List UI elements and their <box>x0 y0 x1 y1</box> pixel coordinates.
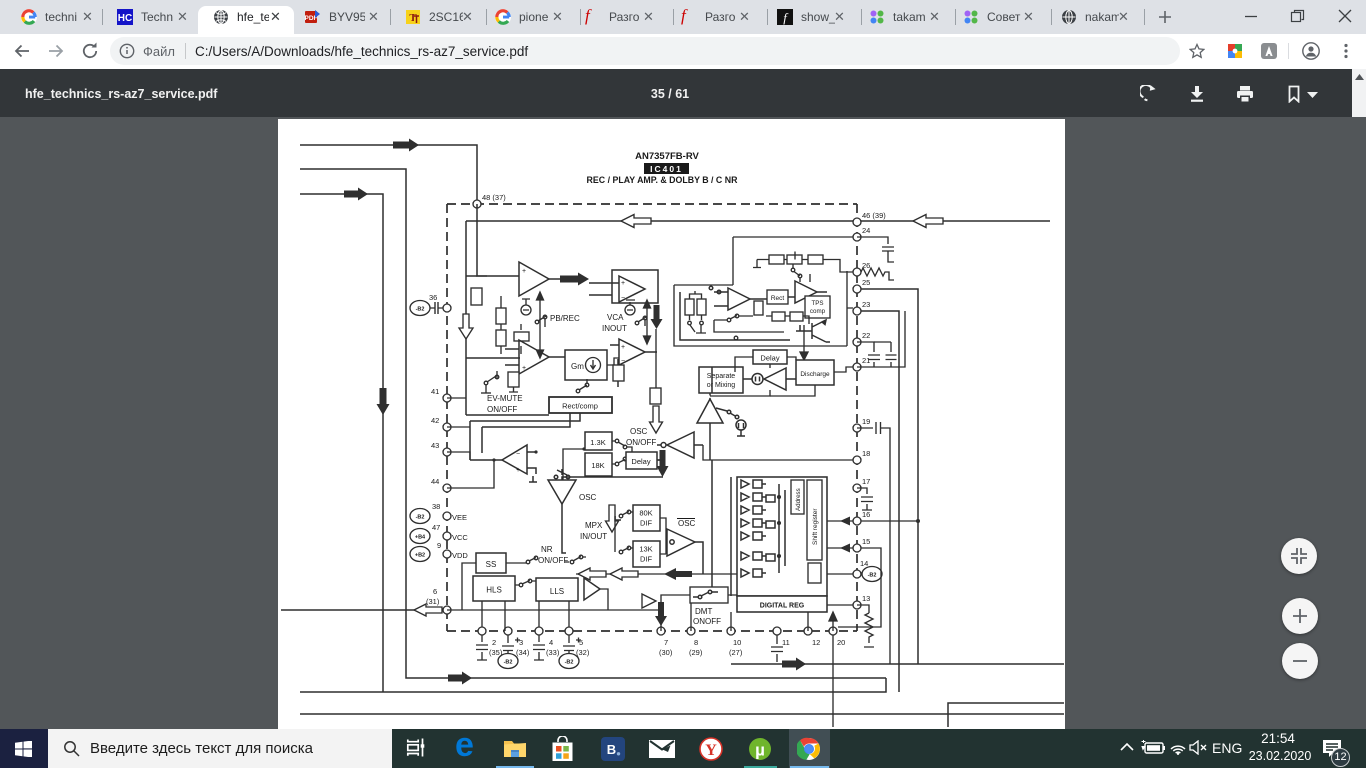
svg-text:46 (39): 46 (39) <box>862 211 886 220</box>
svg-text:47: 47 <box>432 523 440 532</box>
svg-text:HLS: HLS <box>486 586 502 595</box>
svg-text:Y: Y <box>705 742 717 759</box>
svg-text:+: + <box>516 467 520 474</box>
svg-text:2: 2 <box>492 638 496 647</box>
svg-text:+: + <box>621 280 625 287</box>
svg-text:-B2: -B2 <box>416 515 425 521</box>
svg-text:+: + <box>522 268 526 275</box>
svg-text:OSC: OSC <box>579 493 597 502</box>
svg-text:21: 21 <box>862 356 870 365</box>
svg-text:48 (37): 48 (37) <box>482 193 506 202</box>
svg-text:13: 13 <box>862 594 870 603</box>
svg-text:+B2: +B2 <box>415 553 425 559</box>
svg-text:HC: HC <box>118 13 132 24</box>
svg-text:VCC: VCC <box>452 533 468 542</box>
svg-text:Discharge: Discharge <box>800 371 830 378</box>
svg-text:13K: 13K <box>639 545 652 554</box>
svg-text:INOUT: INOUT <box>602 324 627 333</box>
svg-text:-B2: -B2 <box>565 660 574 666</box>
svg-text:AN7357FB-RV: AN7357FB-RV <box>635 151 699 162</box>
svg-text:15: 15 <box>862 537 870 546</box>
svg-text:14: 14 <box>860 559 868 568</box>
svg-text:22: 22 <box>862 331 870 340</box>
svg-text:1.3K: 1.3K <box>590 438 605 447</box>
svg-text:25: 25 <box>862 278 870 287</box>
svg-text:(29): (29) <box>689 648 703 657</box>
svg-text:MPX: MPX <box>585 521 603 530</box>
svg-text:or Mixing: or Mixing <box>707 382 736 389</box>
svg-text:20: 20 <box>837 638 845 647</box>
svg-text:+: + <box>522 365 526 372</box>
svg-text:SS: SS <box>486 560 497 569</box>
svg-text:(32): (32) <box>576 648 590 657</box>
svg-text:11: 11 <box>782 638 790 647</box>
svg-text:-B2: -B2 <box>504 660 513 666</box>
svg-text:DMT: DMT <box>695 607 712 616</box>
svg-text:(27): (27) <box>729 648 743 657</box>
svg-text:VEE: VEE <box>452 513 467 522</box>
svg-text:IN/OUT: IN/OUT <box>580 532 607 541</box>
svg-text:−: − <box>621 358 625 365</box>
svg-text:38: 38 <box>432 502 440 511</box>
svg-text:(34): (34) <box>516 648 530 657</box>
svg-text:6: 6 <box>433 587 437 596</box>
svg-text:OSC: OSC <box>630 427 648 436</box>
svg-text:10: 10 <box>733 638 741 647</box>
svg-text:LLS: LLS <box>550 587 564 596</box>
svg-text:18K: 18K <box>591 461 604 470</box>
svg-text:(31): (31) <box>426 597 440 606</box>
svg-text:36: 36 <box>429 293 437 302</box>
svg-text:41: 41 <box>431 387 439 396</box>
svg-text:24: 24 <box>862 226 870 235</box>
svg-text:DIF: DIF <box>640 519 653 528</box>
svg-text:-B2: -B2 <box>868 573 877 579</box>
svg-text:+B4: +B4 <box>415 535 426 541</box>
svg-text:12: 12 <box>812 638 820 647</box>
svg-text:+: + <box>621 344 625 351</box>
svg-text:ON/OFF: ON/OFF <box>487 405 517 414</box>
svg-text:−: − <box>516 451 520 458</box>
svg-text:TPS: TPS <box>811 300 823 307</box>
svg-text:17: 17 <box>862 477 870 486</box>
svg-text:comp: comp <box>810 308 826 315</box>
svg-text:µ: µ <box>755 741 765 760</box>
svg-text:ON/OFF: ON/OFF <box>538 556 568 565</box>
svg-text:DIF: DIF <box>640 555 653 564</box>
svg-text:Rect/comp: Rect/comp <box>562 402 598 411</box>
svg-text:OSC: OSC <box>678 519 696 528</box>
svg-text:PB/REC: PB/REC <box>550 314 580 323</box>
svg-text:−: − <box>621 295 625 302</box>
svg-text:Address: Address <box>795 488 802 511</box>
svg-text:DIGITAL REG: DIGITAL REG <box>760 603 805 610</box>
svg-text:Delay: Delay <box>631 457 650 466</box>
svg-text:B: B <box>607 742 616 757</box>
svg-text:VCA: VCA <box>607 313 624 322</box>
svg-text:9: 9 <box>437 541 441 550</box>
svg-text:42: 42 <box>431 416 439 425</box>
svg-text:VDD: VDD <box>452 551 468 560</box>
svg-text:4: 4 <box>549 638 553 647</box>
svg-text:(30): (30) <box>659 648 673 657</box>
svg-text:80K: 80K <box>639 509 652 518</box>
svg-text:8: 8 <box>694 638 698 647</box>
svg-text:REC / PLAY AMP. & DOLBY B: REC / PLAY AMP. & DOLBY B / C NR <box>587 175 739 185</box>
svg-text:18: 18 <box>862 449 870 458</box>
svg-text:43: 43 <box>431 441 439 450</box>
svg-text:7: 7 <box>664 638 668 647</box>
svg-text:(33): (33) <box>546 648 560 657</box>
svg-text:Gm: Gm <box>571 362 584 371</box>
svg-text:EV-MUTE: EV-MUTE <box>487 394 523 403</box>
svg-text:-B2: -B2 <box>416 307 425 313</box>
svg-text:Shift register: Shift register <box>812 508 819 545</box>
svg-text:ONOFF: ONOFF <box>693 617 721 626</box>
svg-text:Separate: Separate <box>707 373 736 380</box>
svg-text:Delay: Delay <box>760 354 779 363</box>
svg-text:19: 19 <box>862 417 870 426</box>
svg-text:ON/OFF: ON/OFF <box>626 438 656 447</box>
svg-text:44: 44 <box>431 477 439 486</box>
svg-text:23: 23 <box>862 300 870 309</box>
svg-text:IC401: IC401 <box>650 164 683 174</box>
svg-text:Rect: Rect <box>771 295 785 302</box>
svg-text:16: 16 <box>862 510 870 519</box>
svg-text:NR: NR <box>541 545 553 554</box>
